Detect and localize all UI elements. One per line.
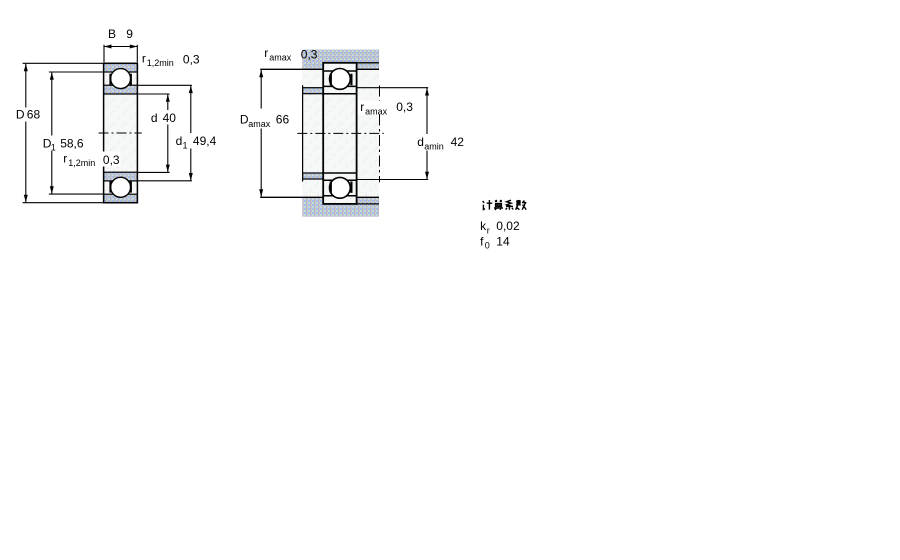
svg-text:1: 1 bbox=[183, 140, 188, 150]
svg-text:0,3: 0,3 bbox=[301, 47, 318, 61]
svg-text:66: 66 bbox=[276, 113, 290, 127]
svg-text:0: 0 bbox=[485, 241, 490, 251]
svg-text:amin: amin bbox=[424, 141, 444, 151]
svg-text:D: D bbox=[16, 108, 25, 122]
svg-text:9: 9 bbox=[126, 27, 133, 41]
svg-text:d: d bbox=[417, 135, 424, 149]
svg-text:d: d bbox=[176, 134, 183, 148]
svg-text:f: f bbox=[480, 234, 484, 248]
svg-text:58,6: 58,6 bbox=[60, 137, 84, 151]
svg-text:r: r bbox=[487, 225, 490, 235]
svg-text:d: d bbox=[151, 111, 158, 125]
svg-text:1: 1 bbox=[51, 143, 56, 153]
svg-text:14: 14 bbox=[496, 234, 510, 248]
svg-text:68: 68 bbox=[27, 108, 41, 122]
svg-text:42: 42 bbox=[451, 135, 465, 149]
svg-text:r: r bbox=[360, 100, 364, 114]
svg-text:0,02: 0,02 bbox=[496, 219, 520, 233]
svg-text:B: B bbox=[108, 27, 116, 41]
svg-text:1,2min: 1,2min bbox=[68, 158, 95, 168]
svg-text:r: r bbox=[142, 51, 146, 65]
svg-text:r: r bbox=[264, 46, 268, 60]
svg-text:amax: amax bbox=[365, 106, 388, 116]
svg-text:0,3: 0,3 bbox=[103, 153, 120, 167]
svg-text:0,3: 0,3 bbox=[183, 53, 200, 67]
svg-text:1,2min: 1,2min bbox=[147, 58, 174, 68]
svg-text:amax: amax bbox=[269, 53, 292, 63]
svg-text:r: r bbox=[63, 152, 67, 166]
svg-text:49,4: 49,4 bbox=[193, 134, 217, 148]
svg-text:0,3: 0,3 bbox=[396, 100, 413, 114]
svg-text:40: 40 bbox=[163, 111, 177, 125]
svg-text:amax: amax bbox=[248, 119, 271, 129]
